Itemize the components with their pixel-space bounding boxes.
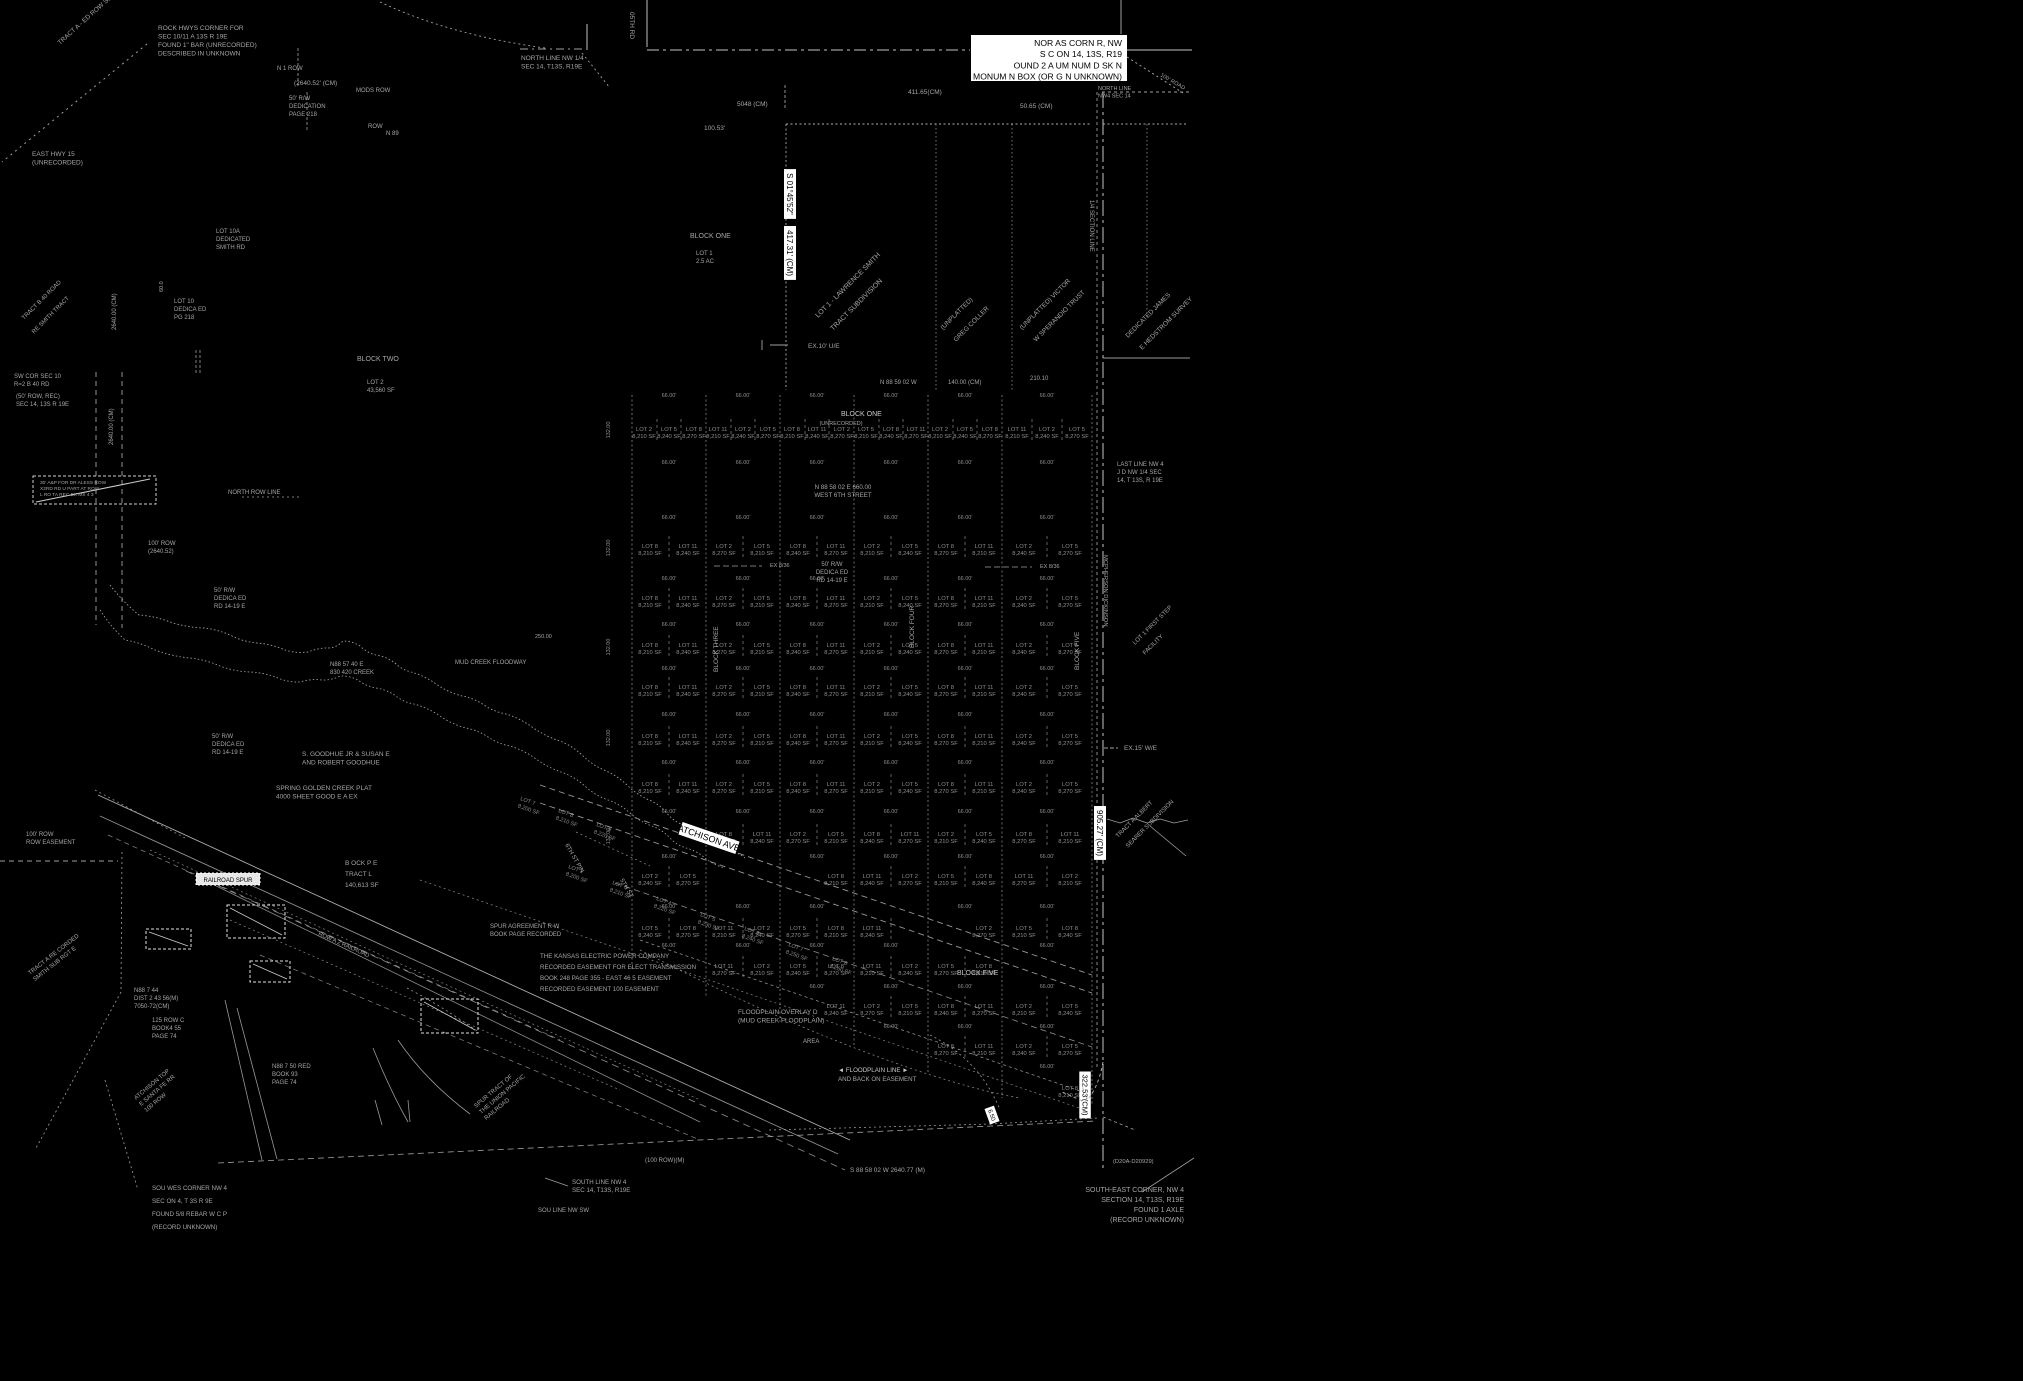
svg-text:PAGE 74: PAGE 74 xyxy=(272,1080,297,1086)
svg-text:66.00': 66.00' xyxy=(1040,984,1055,990)
svg-text:2640.00 (CM): 2640.00 (CM) xyxy=(112,293,118,330)
svg-text:SECTION 14, T13S, R19E: SECTION 14, T13S, R19E xyxy=(1101,1197,1184,1204)
svg-text:8,210 SF: 8,210 SF xyxy=(972,692,996,698)
svg-text:SOUTH-EAST CORNER, NW 4: SOUTH-EAST CORNER, NW 4 xyxy=(1085,1187,1184,1194)
svg-text:LOT 5: LOT 5 xyxy=(760,427,776,433)
svg-text:66.00': 66.00' xyxy=(810,460,825,466)
svg-text:LOT 8: LOT 8 xyxy=(680,926,696,932)
svg-text:LOT 8: LOT 8 xyxy=(938,685,954,691)
svg-text:BOOK 93: BOOK 93 xyxy=(272,1072,298,1078)
svg-text:8,240 SF: 8,240 SF xyxy=(786,789,810,795)
svg-text:FOUND 1 AXLE: FOUND 1 AXLE xyxy=(1134,1207,1185,1214)
svg-text:8,270 SF: 8,270 SF xyxy=(934,789,958,795)
svg-text:8,270 SF: 8,270 SF xyxy=(972,933,996,939)
svg-text:LOT 5: LOT 5 xyxy=(680,874,696,880)
svg-text:8,210 SF: 8,210 SF xyxy=(632,434,656,440)
svg-text:BLOCK TWO: BLOCK TWO xyxy=(357,356,399,363)
svg-text:8,240 SF: 8,240 SF xyxy=(786,971,810,977)
svg-text:EX.15' W/E: EX.15' W/E xyxy=(1124,745,1158,752)
svg-text:RAILROAD SPUR: RAILROAD SPUR xyxy=(203,878,253,884)
svg-text:66.00': 66.00' xyxy=(1040,460,1055,466)
svg-text:LOT 2: LOT 2 xyxy=(367,380,384,386)
svg-text:66.00': 66.00' xyxy=(662,760,677,766)
svg-text:LOT 8: LOT 8 xyxy=(1062,1086,1078,1092)
svg-text:8,240 SF: 8,240 SF xyxy=(1058,1011,1082,1017)
svg-text:THE KANSAS ELECTRIC POWER COMP: THE KANSAS ELECTRIC POWER COMPANY xyxy=(540,953,669,960)
svg-text:66.00': 66.00' xyxy=(1040,393,1055,399)
svg-text:2640.00 (CM): 2640.00 (CM) xyxy=(109,408,115,445)
svg-text:8,270 SF: 8,270 SF xyxy=(712,603,736,609)
svg-text:LOT 2: LOT 2 xyxy=(1016,1044,1032,1050)
svg-text:BOOK4 55: BOOK4 55 xyxy=(152,1026,182,1032)
svg-text:411.65(CM): 411.65(CM) xyxy=(908,89,942,96)
svg-text:LOT 5: LOT 5 xyxy=(754,734,770,740)
svg-text:LOT 8: LOT 8 xyxy=(938,596,954,602)
svg-text:LOT 8: LOT 8 xyxy=(790,596,806,602)
svg-text:(100 ROW)(M): (100 ROW)(M) xyxy=(645,1158,684,1164)
svg-text:8,210 SF: 8,210 SF xyxy=(638,551,662,557)
svg-text:LOT 8: LOT 8 xyxy=(642,685,658,691)
svg-text:8,240 SF: 8,240 SF xyxy=(1012,789,1036,795)
svg-text:8,210 SF: 8,210 SF xyxy=(860,692,884,698)
svg-text:BOOK 248 PAGE 355 - EAST 4: BOOK 248 PAGE 355 - EAST 46 5 EASEMENT xyxy=(540,975,672,982)
svg-text:N 88 59 02 W: N 88 59 02 W xyxy=(880,380,917,386)
svg-text:LOT 2: LOT 2 xyxy=(1016,782,1032,788)
svg-text:8,270 SF: 8,270 SF xyxy=(1058,551,1082,557)
svg-text:FLOODPLAIN OVERLAY D: FLOODPLAIN OVERLAY D xyxy=(738,1009,818,1016)
svg-text:SOUTH LINE NW 4: SOUTH LINE NW 4 xyxy=(572,1179,627,1186)
svg-text:8,270 SF: 8,270 SF xyxy=(712,741,736,747)
svg-text:LOT 11: LOT 11 xyxy=(679,544,698,550)
svg-text:BLOCK FOUR: BLOCK FOUR xyxy=(909,605,916,648)
svg-text:8,210 SF: 8,210 SF xyxy=(1058,839,1082,845)
svg-text:LOT 11: LOT 11 xyxy=(808,427,827,433)
svg-text:LOT 8: LOT 8 xyxy=(976,874,992,880)
svg-text:66.00': 66.00' xyxy=(736,904,751,910)
svg-text:8,270 SF: 8,270 SF xyxy=(1058,789,1082,795)
svg-text:66.00': 66.00' xyxy=(958,393,973,399)
svg-text:LOT 2: LOT 2 xyxy=(932,427,948,433)
svg-text:LOT 8: LOT 8 xyxy=(938,734,954,740)
svg-text:(2640.52): (2640.52) xyxy=(148,549,174,555)
svg-text:66.00': 66.00' xyxy=(662,809,677,815)
svg-text:50' R/W: 50' R/W xyxy=(821,562,842,568)
svg-text:8,240 SF: 8,240 SF xyxy=(638,933,662,939)
svg-text:8,210 SF: 8,210 SF xyxy=(934,839,958,845)
svg-text:8,270 SF: 8,270 SF xyxy=(786,933,810,939)
svg-text:8,270 SF: 8,270 SF xyxy=(934,741,958,747)
svg-text:N 88 58 02 E 660.00: N 88 58 02 E 660.00 xyxy=(815,484,872,491)
svg-text:N 89: N 89 xyxy=(386,131,399,137)
svg-text:LOT 5: LOT 5 xyxy=(902,596,918,602)
svg-text:8,240 SF: 8,240 SF xyxy=(1012,650,1036,656)
svg-text:(RECORD UNKNOWN): (RECORD UNKNOWN) xyxy=(152,1224,217,1231)
svg-text:LOT 5: LOT 5 xyxy=(754,643,770,649)
svg-text:LOT 2: LOT 2 xyxy=(864,596,880,602)
svg-text:8,270 SF: 8,270 SF xyxy=(972,1011,996,1017)
svg-text:SMITH RD: SMITH RD xyxy=(216,245,246,251)
svg-text:8,210 SF: 8,210 SF xyxy=(854,434,878,440)
svg-text:LOT 11: LOT 11 xyxy=(679,643,698,649)
svg-text:8,240 SF: 8,240 SF xyxy=(676,650,700,656)
svg-text:LOT 8: LOT 8 xyxy=(864,832,880,838)
svg-text:66.00': 66.00' xyxy=(662,460,677,466)
svg-text:LOT 5: LOT 5 xyxy=(790,926,806,932)
svg-text:J D NW 1/4 SEC: J D NW 1/4 SEC xyxy=(1117,470,1162,476)
svg-text:8,210 SF: 8,210 SF xyxy=(1012,933,1036,939)
svg-text:SEC 14, 13S R 19E: SEC 14, 13S R 19E xyxy=(16,402,69,408)
svg-text:8,210 SF: 8,210 SF xyxy=(750,551,774,557)
svg-text:DEDICA ED: DEDICA ED xyxy=(214,596,247,602)
svg-text:66.00': 66.00' xyxy=(736,515,751,521)
svg-text:8,210 SF: 8,210 SF xyxy=(860,551,884,557)
svg-text:66.00': 66.00' xyxy=(810,622,825,628)
svg-text:8,210 SF: 8,210 SF xyxy=(1005,434,1029,440)
svg-text:8,270 SF: 8,270 SF xyxy=(1058,1051,1082,1057)
svg-text:LOT 5: LOT 5 xyxy=(1062,596,1078,602)
svg-text:LOT 8: LOT 8 xyxy=(883,427,899,433)
svg-text:66.00': 66.00' xyxy=(810,904,825,910)
svg-text:66.00': 66.00' xyxy=(958,984,973,990)
svg-text:66.00': 66.00' xyxy=(958,622,973,628)
svg-text:50.65 (CM): 50.65 (CM) xyxy=(1020,103,1053,110)
svg-text:8,210 SF: 8,210 SF xyxy=(1012,1011,1036,1017)
svg-text:66.00': 66.00' xyxy=(1040,943,1055,949)
svg-text:BLOCK THREE: BLOCK THREE xyxy=(713,626,720,672)
svg-text:66.00': 66.00' xyxy=(1040,622,1055,628)
svg-text:43,560 SF: 43,560 SF xyxy=(367,388,395,394)
svg-text:8,240 SF: 8,240 SF xyxy=(1012,603,1036,609)
svg-text:8,210 SF: 8,210 SF xyxy=(972,603,996,609)
svg-text:66.00': 66.00' xyxy=(884,984,899,990)
svg-text:R=2 B 40 RD: R=2 B 40 RD xyxy=(14,382,50,388)
svg-text:BLOCK ONE: BLOCK ONE xyxy=(841,411,882,418)
svg-text:8,210 SF: 8,210 SF xyxy=(638,789,662,795)
svg-text:8,210 SF: 8,210 SF xyxy=(972,741,996,747)
svg-text:LOT 5: LOT 5 xyxy=(902,734,918,740)
svg-text:66.00': 66.00' xyxy=(884,622,899,628)
svg-text:66.00': 66.00' xyxy=(1040,904,1055,910)
svg-text:8,240 SF: 8,240 SF xyxy=(1012,551,1036,557)
svg-text:RECORDED EASEMENT FOR ELECT T: RECORDED EASEMENT FOR ELECT TRANSMISSION xyxy=(540,964,696,971)
svg-text:LOT 8: LOT 8 xyxy=(790,544,806,550)
svg-text:8,270 SF: 8,270 SF xyxy=(1058,741,1082,747)
svg-text:66.00': 66.00' xyxy=(1040,712,1055,718)
svg-text:LOT 2: LOT 2 xyxy=(938,832,954,838)
svg-text:66.00': 66.00' xyxy=(810,984,825,990)
svg-text:LOT 5: LOT 5 xyxy=(1062,782,1078,788)
svg-text:ROW: ROW xyxy=(368,124,383,130)
svg-text:8,210 SF: 8,210 SF xyxy=(1058,881,1082,887)
svg-text:66.00': 66.00' xyxy=(884,460,899,466)
svg-text:8,240 SF: 8,240 SF xyxy=(786,650,810,656)
svg-text:LOT 2: LOT 2 xyxy=(1016,544,1032,550)
svg-text:8,240 SF: 8,240 SF xyxy=(1012,741,1036,747)
svg-text:LOT 5: LOT 5 xyxy=(1062,1044,1078,1050)
svg-text:DEDICA ED: DEDICA ED xyxy=(212,742,245,748)
svg-text:LOT 5: LOT 5 xyxy=(661,427,677,433)
svg-text:8,240 SF: 8,240 SF xyxy=(953,434,977,440)
svg-text:LOT 8: LOT 8 xyxy=(982,427,998,433)
svg-text:66.00': 66.00' xyxy=(662,576,677,582)
svg-text:8,210 SF: 8,210 SF xyxy=(860,741,884,747)
svg-text:LOT 5: LOT 5 xyxy=(976,832,992,838)
svg-text:66.00': 66.00' xyxy=(736,622,751,628)
svg-text:LOT 2: LOT 2 xyxy=(864,782,880,788)
svg-text:66.00': 66.00' xyxy=(810,809,825,815)
svg-text:LOT 11: LOT 11 xyxy=(863,874,882,880)
svg-text:8,270 SF: 8,270 SF xyxy=(1012,881,1036,887)
svg-text:N 1 ROW: N 1 ROW xyxy=(277,66,303,72)
svg-text:TRACT L: TRACT L xyxy=(345,871,372,878)
svg-text:LOT 11: LOT 11 xyxy=(975,1044,994,1050)
svg-text:8,270 SF: 8,270 SF xyxy=(904,434,928,440)
svg-text:66.00': 66.00' xyxy=(736,666,751,672)
svg-text:LOT 11: LOT 11 xyxy=(975,1004,994,1010)
svg-text:66.00': 66.00' xyxy=(884,809,899,815)
svg-text:8,270 SF: 8,270 SF xyxy=(1058,603,1082,609)
svg-text:LOT 2: LOT 2 xyxy=(864,643,880,649)
svg-text:830 420 CREEK: 830 420 CREEK xyxy=(330,670,374,676)
svg-text:LOT 8: LOT 8 xyxy=(938,1044,954,1050)
svg-text:8,270 SF: 8,270 SF xyxy=(1012,839,1036,845)
svg-text:B OCK P E: B OCK P E xyxy=(345,860,378,867)
svg-text:8,210 SF: 8,210 SF xyxy=(860,603,884,609)
svg-text:RD 14-19 E: RD 14-19 E xyxy=(212,750,243,756)
svg-text:LOT 11: LOT 11 xyxy=(827,643,846,649)
svg-text:AREA: AREA xyxy=(803,1039,819,1045)
svg-text:LOT 5: LOT 5 xyxy=(754,596,770,602)
svg-text:66.00': 66.00' xyxy=(662,515,677,521)
svg-text:SEC 10/11 A 13S R 19E: SEC 10/11 A 13S R 19E xyxy=(158,34,228,41)
svg-text:100' ROW: 100' ROW xyxy=(148,541,176,547)
svg-text:8,210 SF: 8,210 SF xyxy=(706,434,730,440)
svg-text:8,240 SF: 8,240 SF xyxy=(898,741,922,747)
svg-text:8,210 SF: 8,210 SF xyxy=(712,933,736,939)
svg-text:LOT 5: LOT 5 xyxy=(1016,926,1032,932)
svg-text:1/4 SECTION LINE: 1/4 SECTION LINE xyxy=(1088,200,1094,252)
svg-text:8,240 SF: 8,240 SF xyxy=(731,434,755,440)
svg-text:100' ROW: 100' ROW xyxy=(26,832,54,838)
svg-text:66.00': 66.00' xyxy=(884,666,899,672)
svg-text:EX.10' U/E: EX.10' U/E xyxy=(808,343,840,350)
svg-text:8,240 SF: 8,240 SF xyxy=(676,551,700,557)
svg-text:LOT 11: LOT 11 xyxy=(827,734,846,740)
svg-text:LOT 8: LOT 8 xyxy=(790,782,806,788)
svg-text:8,270 SF: 8,270 SF xyxy=(824,692,848,698)
svg-text:8,240 SF: 8,240 SF xyxy=(786,603,810,609)
svg-text:LOT 8: LOT 8 xyxy=(938,782,954,788)
svg-text:LOT 5: LOT 5 xyxy=(902,544,918,550)
svg-text:LOT 1: LOT 1 xyxy=(696,251,713,257)
svg-text:AND BACK ON EASEMENT: AND BACK ON EASEMENT xyxy=(838,1076,917,1083)
svg-text:LOT 2: LOT 2 xyxy=(716,596,732,602)
svg-text:LOT 11: LOT 11 xyxy=(753,832,772,838)
svg-text:LOT 5: LOT 5 xyxy=(902,782,918,788)
svg-text:8,210 SF: 8,210 SF xyxy=(750,789,774,795)
svg-text:8,210 SF: 8,210 SF xyxy=(824,933,848,939)
svg-text:8,240 SF: 8,240 SF xyxy=(786,692,810,698)
svg-text:ROW EASEMENT: ROW EASEMENT xyxy=(26,840,76,846)
svg-text:8,210 SF: 8,210 SF xyxy=(780,434,804,440)
svg-text:66.00': 66.00' xyxy=(958,576,973,582)
svg-text:LOT 2: LOT 2 xyxy=(716,782,732,788)
svg-text:LOT 8: LOT 8 xyxy=(1016,832,1032,838)
svg-text:LOT 8: LOT 8 xyxy=(828,926,844,932)
svg-text:LOT 8: LOT 8 xyxy=(938,1004,954,1010)
svg-text:66.00': 66.00' xyxy=(958,854,973,860)
svg-text:LOT 11: LOT 11 xyxy=(679,734,698,740)
svg-text:ROCK HWYS CORNER FOR: ROCK HWYS CORNER FOR xyxy=(158,25,244,32)
svg-text:LOT 8: LOT 8 xyxy=(790,643,806,649)
svg-text:8,210 SF: 8,210 SF xyxy=(750,650,774,656)
svg-text:8,240 SF: 8,240 SF xyxy=(934,1011,958,1017)
svg-text:66.00': 66.00' xyxy=(958,712,973,718)
svg-text:66.00': 66.00' xyxy=(1040,666,1055,672)
svg-text:OUND 2 A UM NUM D SK N: OUND 2 A UM NUM D SK N xyxy=(1014,60,1122,70)
svg-text:8,240 SF: 8,240 SF xyxy=(898,789,922,795)
svg-text:66.00': 66.00' xyxy=(884,393,899,399)
svg-text:S C ON 14, 13S, R19: S C ON 14, 13S, R19 xyxy=(1040,49,1122,59)
svg-text:LOT 5: LOT 5 xyxy=(642,926,658,932)
svg-text:BLOCK FIVE: BLOCK FIVE xyxy=(957,970,999,977)
svg-text:66.00': 66.00' xyxy=(736,809,751,815)
svg-text:66.00': 66.00' xyxy=(958,904,973,910)
svg-text:LOT 5: LOT 5 xyxy=(828,832,844,838)
svg-text:8,210 SF: 8,210 SF xyxy=(750,741,774,747)
svg-text:8,270 SF: 8,270 SF xyxy=(824,789,848,795)
svg-text:66.00': 66.00' xyxy=(884,760,899,766)
svg-text:14, T 13S, R 19E: 14, T 13S, R 19E xyxy=(1117,478,1163,484)
svg-text:N88 7 50 RED: N88 7 50 RED xyxy=(272,1064,311,1070)
svg-text:8,240 SF: 8,240 SF xyxy=(824,1011,848,1017)
svg-text:BLOCK ONE: BLOCK ONE xyxy=(690,233,731,240)
svg-text:SOU LINE NW SW: SOU LINE NW SW xyxy=(538,1208,589,1214)
svg-text:8,210 SF: 8,210 SF xyxy=(750,603,774,609)
svg-text:66.00': 66.00' xyxy=(884,712,899,718)
svg-text:LOT 5: LOT 5 xyxy=(1062,544,1078,550)
svg-text:8,270 SF: 8,270 SF xyxy=(860,1011,884,1017)
svg-text:LOT 2: LOT 2 xyxy=(1016,643,1032,649)
svg-text:LOT 11: LOT 11 xyxy=(975,596,994,602)
svg-text:66.00': 66.00' xyxy=(1040,576,1055,582)
svg-text:NORTH LINE: NORTH LINE xyxy=(1098,86,1132,92)
svg-text:8,240 SF: 8,240 SF xyxy=(1035,434,1059,440)
svg-text:66.00': 66.00' xyxy=(736,760,751,766)
svg-text:LOT 11: LOT 11 xyxy=(827,544,846,550)
svg-text:SPRING GOLDEN CREEK PLAT: SPRING GOLDEN CREEK PLAT xyxy=(276,785,372,792)
svg-text:8,270 SF: 8,270 SF xyxy=(934,551,958,557)
svg-text:LOT 2: LOT 2 xyxy=(790,832,806,838)
svg-text:(RECORD UNKNOWN): (RECORD UNKNOWN) xyxy=(1110,1217,1184,1224)
svg-text:8,240 SF: 8,240 SF xyxy=(638,881,662,887)
svg-text:SPUR AGREEMENT R W: SPUR AGREEMENT R W xyxy=(490,924,560,930)
svg-text:8,210 SF: 8,210 SF xyxy=(824,839,848,845)
svg-text:S 88 58 02 W 2640.77 (M): S 88 58 02 W 2640.77 (M) xyxy=(850,1167,925,1174)
svg-text:MODS ROW: MODS ROW xyxy=(356,88,391,94)
svg-text:8,270 SF: 8,270 SF xyxy=(1065,434,1089,440)
svg-text:66.00': 66.00' xyxy=(662,622,677,628)
svg-text:LOT 2: LOT 2 xyxy=(902,964,918,970)
svg-text:PAGE 218: PAGE 218 xyxy=(289,112,318,118)
svg-text:66.00': 66.00' xyxy=(958,809,973,815)
svg-text:8,270 SF: 8,270 SF xyxy=(712,551,736,557)
svg-text:905.27' (CM): 905.27' (CM) xyxy=(1095,810,1104,856)
svg-text:X2RD RD U PART AT ROW: X2RD RD U PART AT ROW xyxy=(40,486,100,492)
svg-text:LOT 8: LOT 8 xyxy=(642,643,658,649)
svg-text:BOOK PAGE RECORDED: BOOK PAGE RECORDED xyxy=(490,932,562,938)
svg-text:8,270 SF: 8,270 SF xyxy=(898,839,922,845)
svg-text:66.00': 66.00' xyxy=(884,1024,899,1030)
svg-text:8,210 SF: 8,210 SF xyxy=(860,789,884,795)
svg-text:66.00': 66.00' xyxy=(958,460,973,466)
svg-text:LOT 8: LOT 8 xyxy=(790,685,806,691)
svg-text:LOT 5: LOT 5 xyxy=(902,1004,918,1010)
svg-text:S. GOODHUE JR & SUSAN E: S. GOODHUE JR & SUSAN E xyxy=(302,751,390,758)
svg-text:(MUD CREEK FLOODPLAIN): (MUD CREEK FLOODPLAIN) xyxy=(738,1018,824,1025)
svg-text:LOT 11: LOT 11 xyxy=(827,782,846,788)
svg-text:LOT 5: LOT 5 xyxy=(902,685,918,691)
svg-text:66.00': 66.00' xyxy=(662,393,677,399)
svg-text:132.00: 132.00 xyxy=(606,639,612,656)
svg-text:LOT 5: LOT 5 xyxy=(858,427,874,433)
svg-text:LOT 5: LOT 5 xyxy=(957,427,973,433)
svg-text:8,270 SF: 8,270 SF xyxy=(934,692,958,698)
svg-text:05TH RD: 05TH RD xyxy=(628,12,635,39)
svg-text:DEDICA ED: DEDICA ED xyxy=(174,307,207,313)
svg-text:8,240 SF: 8,240 SF xyxy=(972,881,996,887)
svg-text:210.10: 210.10 xyxy=(1030,376,1049,382)
svg-text:LOT 5: LOT 5 xyxy=(754,544,770,550)
svg-text:LOT 8: LOT 8 xyxy=(938,544,954,550)
svg-text:LOT 11: LOT 11 xyxy=(975,685,994,691)
svg-text:66.00': 66.00' xyxy=(884,576,899,582)
svg-text:50' R/W: 50' R/W xyxy=(212,734,233,740)
svg-text:8,210 SF: 8,210 SF xyxy=(972,1051,996,1057)
svg-text:8,210 SF: 8,210 SF xyxy=(898,1011,922,1017)
svg-text:NORTH LINE NW 1/4: NORTH LINE NW 1/4 xyxy=(521,55,584,62)
svg-text:SEC ON 4, T 3S R 9E: SEC ON 4, T 3S R 9E xyxy=(152,1198,213,1205)
svg-text:DESCRIBED IN UNKNOWN: DESCRIBED IN UNKNOWN xyxy=(158,51,241,58)
svg-text:MONUM N BOX (OR G N UNKNOWN: MONUM N BOX (OR G N UNKNOWN) xyxy=(973,72,1122,82)
svg-text:AND ROBERT GOODHUE: AND ROBERT GOODHUE xyxy=(302,760,380,767)
svg-text:LOT 2: LOT 2 xyxy=(642,874,658,880)
svg-text:66.00': 66.00' xyxy=(810,760,825,766)
svg-text:LOT 8: LOT 8 xyxy=(828,874,844,880)
svg-text:66.00': 66.00' xyxy=(884,854,899,860)
svg-text:LOT 11: LOT 11 xyxy=(975,782,994,788)
svg-text:66.00': 66.00' xyxy=(810,712,825,718)
svg-text:8,210 SF: 8,210 SF xyxy=(750,692,774,698)
svg-text:8,270 SF: 8,270 SF xyxy=(824,551,848,557)
svg-text:LOT 2: LOT 2 xyxy=(1039,427,1055,433)
svg-text:2.5 AC: 2.5 AC xyxy=(696,259,715,265)
svg-text:30' A&P FOR DR ALESS ROW: 30' A&P FOR DR ALESS ROW xyxy=(40,480,107,486)
svg-text:8,240 SF: 8,240 SF xyxy=(676,603,700,609)
svg-text:BLOCK FIVE: BLOCK FIVE xyxy=(1074,631,1081,670)
svg-text:DIST 2 43 56(M): DIST 2 43 56(M) xyxy=(134,996,178,1002)
svg-text:LOT 8: LOT 8 xyxy=(642,734,658,740)
svg-text:8,270 SF: 8,270 SF xyxy=(1058,692,1082,698)
svg-text:LOT 11: LOT 11 xyxy=(827,596,846,602)
svg-text:66.00': 66.00' xyxy=(1040,809,1055,815)
svg-text:8,240 SF: 8,240 SF xyxy=(860,933,884,939)
svg-text:7050-72(CM): 7050-72(CM) xyxy=(134,1004,169,1010)
svg-text:8,240 SF: 8,240 SF xyxy=(676,789,700,795)
svg-text:LOT 2: LOT 2 xyxy=(864,734,880,740)
svg-text:66.00': 66.00' xyxy=(736,576,751,582)
svg-text:100.53': 100.53' xyxy=(704,125,725,132)
